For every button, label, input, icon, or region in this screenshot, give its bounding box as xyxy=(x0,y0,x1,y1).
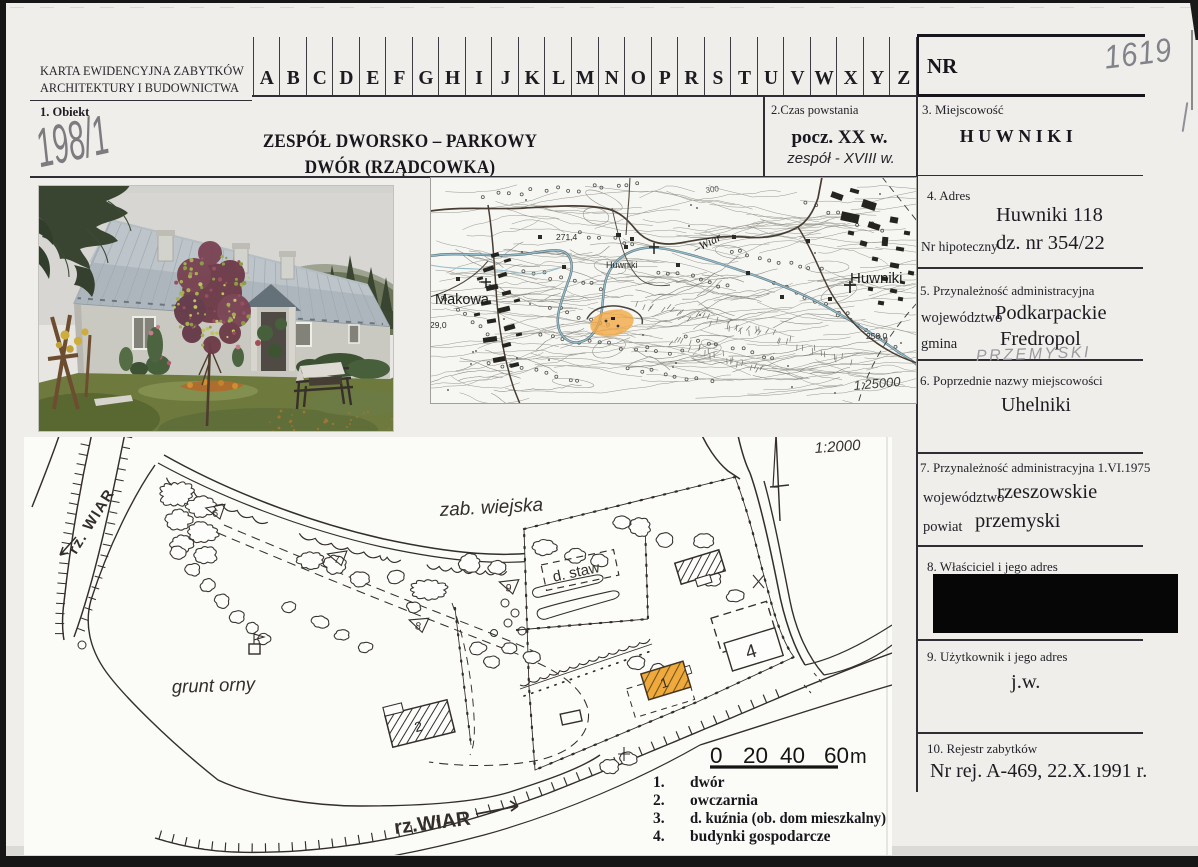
svg-text:grunt orny: grunt orny xyxy=(171,673,257,697)
svg-text:Huwniki: Huwniki xyxy=(606,260,638,270)
svg-text:271,4: 271,4 xyxy=(556,232,578,242)
svg-text:2.: 2. xyxy=(653,792,665,809)
svg-text:6: 6 xyxy=(212,507,219,519)
svg-text:1:2000: 1:2000 xyxy=(814,437,862,457)
svg-text:dwór: dwór xyxy=(690,774,725,791)
svg-text:budynki gospodarcze: budynki gospodarcze xyxy=(690,828,831,845)
svg-text:Huwniki: Huwniki xyxy=(850,270,903,287)
svg-text:owczarnia: owczarnia xyxy=(690,792,758,809)
svg-text:258,0: 258,0 xyxy=(866,331,888,341)
svg-text:3.: 3. xyxy=(653,810,665,827)
svg-text:d. kuźnia (ob. dom mieszkalny): d. kuźnia (ob. dom mieszkalny) xyxy=(690,810,886,827)
svg-text:Makowa: Makowa xyxy=(435,292,490,308)
svg-text:1.: 1. xyxy=(653,774,665,791)
svg-text:4.: 4. xyxy=(653,828,665,845)
svg-text:29,0: 29,0 xyxy=(430,320,447,330)
svg-text:300: 300 xyxy=(705,184,720,195)
